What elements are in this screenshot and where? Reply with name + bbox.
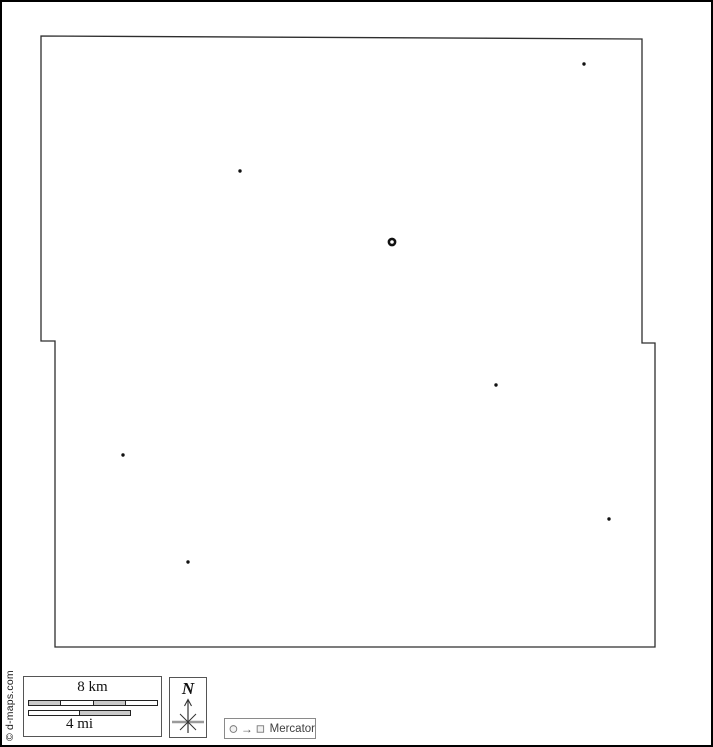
scale-mi-label: 4 mi <box>28 716 131 733</box>
scale-segment <box>60 701 92 705</box>
north-arrow-box: N <box>169 677 207 738</box>
scale-segment <box>93 701 125 705</box>
scale-km-bar <box>28 700 158 706</box>
city-dot <box>494 383 497 386</box>
scale-segment <box>29 701 60 705</box>
compass-star-icon <box>170 697 206 737</box>
projection-square-icon <box>256 723 265 735</box>
scale-segment <box>29 711 79 715</box>
capital-ring-marker <box>389 239 395 245</box>
city-dot <box>238 169 241 172</box>
scale-km-label: 8 km <box>28 679 157 696</box>
city-dot <box>186 560 189 563</box>
region-boundary <box>41 36 655 647</box>
arrow-right-icon: → <box>241 723 253 735</box>
projection-legend-box: → Mercator <box>224 718 316 739</box>
map-drawing <box>0 0 713 747</box>
scale-bar-box: 8 km 4 mi <box>23 676 162 737</box>
scale-segment <box>125 701 157 705</box>
map-canvas: 8 km 4 mi N → Mercator <box>0 0 713 747</box>
copyright-text: © d-maps.com <box>4 670 16 741</box>
north-label: N <box>170 679 206 699</box>
globe-circle-icon <box>229 723 238 735</box>
scale-segment <box>79 711 130 715</box>
city-dot <box>582 62 585 65</box>
projection-name: Mercator <box>268 723 315 735</box>
city-dot <box>607 517 610 520</box>
city-dot <box>121 453 124 456</box>
